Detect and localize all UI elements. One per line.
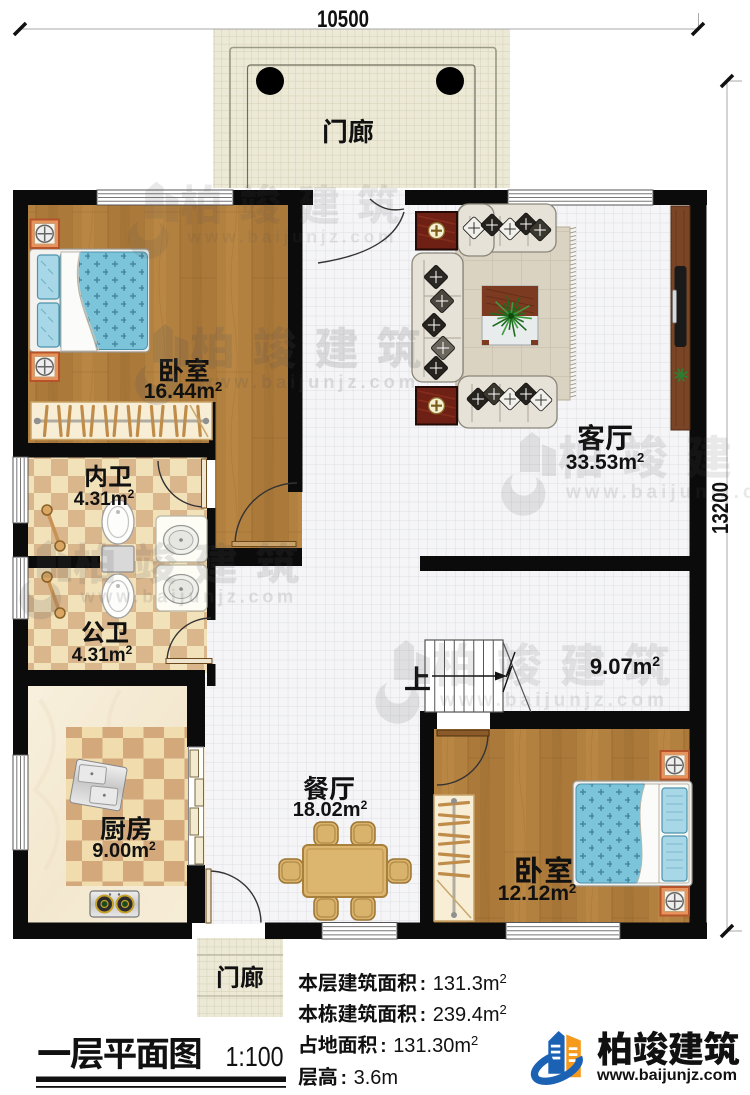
svg-text:239.4m2: 239.4m2 bbox=[433, 1002, 507, 1026]
svg-text:www.baijunjz.com: www.baijunjz.com bbox=[197, 371, 419, 392]
svg-text::: : bbox=[380, 1036, 386, 1057]
svg-text:1:100: 1:100 bbox=[226, 1041, 284, 1072]
svg-text:4.31m2: 4.31m2 bbox=[72, 643, 133, 666]
svg-text:9.07m2: 9.07m2 bbox=[590, 653, 660, 679]
svg-text:3.6m: 3.6m bbox=[354, 1067, 398, 1089]
svg-text:www.baijunjz.com: www.baijunjz.com bbox=[596, 1067, 737, 1084]
svg-text:131.3m2: 131.3m2 bbox=[433, 971, 507, 995]
svg-text:4.31m2: 4.31m2 bbox=[74, 487, 135, 510]
svg-text:33.53m2: 33.53m2 bbox=[566, 450, 644, 474]
svg-text:18.02m2: 18.02m2 bbox=[293, 798, 368, 821]
svg-text::: : bbox=[420, 974, 426, 995]
svg-text::: : bbox=[341, 1068, 347, 1089]
svg-text:www.baijunjz.com: www.baijunjz.com bbox=[187, 226, 398, 246]
svg-text:131.30m2: 131.30m2 bbox=[393, 1033, 478, 1057]
svg-text:13200: 13200 bbox=[707, 482, 733, 534]
svg-text:9.00m2: 9.00m2 bbox=[92, 839, 156, 862]
svg-text:www.baijunjz.com: www.baijunjz.com bbox=[439, 690, 668, 711]
svg-text:12.12m2: 12.12m2 bbox=[498, 881, 576, 905]
svg-text::: : bbox=[420, 1005, 426, 1026]
svg-text:16.44m2: 16.44m2 bbox=[144, 379, 222, 403]
svg-text:10500: 10500 bbox=[317, 6, 369, 33]
svg-text:www.baijunjz.com: www.baijunjz.com bbox=[80, 587, 297, 607]
